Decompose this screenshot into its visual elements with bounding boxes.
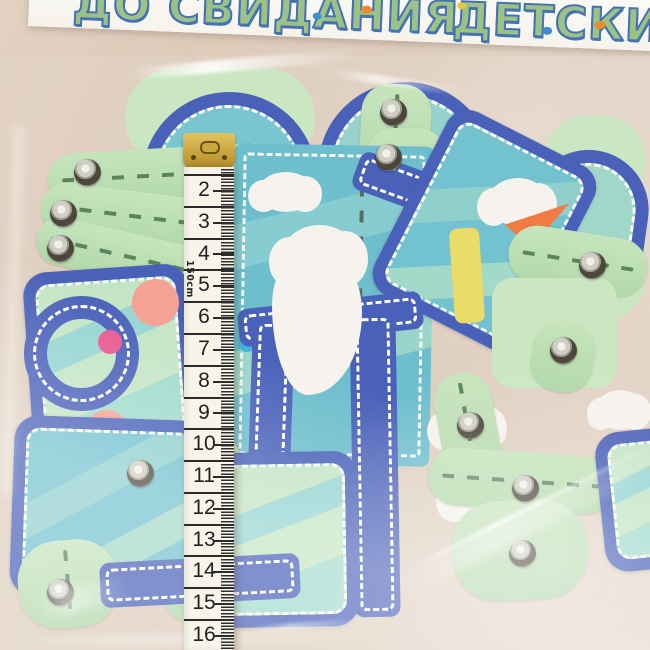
pieces-stack bbox=[0, 0, 650, 650]
cloud-shape bbox=[258, 172, 314, 212]
tape-cm-line bbox=[184, 460, 234, 462]
tape-cm-line bbox=[184, 397, 234, 399]
tape-half-cm-tick bbox=[213, 349, 234, 351]
metal-eyelet bbox=[457, 412, 484, 439]
tape-cm-line bbox=[184, 174, 234, 176]
coral-circle bbox=[132, 279, 179, 326]
tape-half-cm-tick bbox=[213, 540, 234, 542]
metal-eyelet bbox=[380, 99, 407, 126]
tape-cm-line bbox=[184, 492, 234, 494]
metal-eyelet bbox=[74, 159, 101, 186]
tape-cm-line bbox=[184, 333, 234, 335]
blue-wheel-ring bbox=[24, 296, 139, 411]
tape-cm-line bbox=[184, 587, 234, 589]
frame-inner bbox=[606, 439, 650, 560]
pillar-dashes bbox=[355, 318, 394, 612]
tape-half-cm-tick bbox=[213, 253, 234, 255]
tape-half-cm-tick bbox=[213, 412, 234, 414]
ring-dashes bbox=[33, 305, 130, 402]
metal-eyelet bbox=[50, 200, 77, 227]
tape-cm-line bbox=[184, 555, 234, 557]
tape-half-cm-tick bbox=[213, 285, 234, 287]
magenta-circle bbox=[98, 330, 122, 354]
tape-mm-ticks bbox=[221, 169, 234, 650]
tape-cm-line bbox=[184, 301, 234, 303]
clip-rivet bbox=[191, 155, 196, 160]
metal-eyelet bbox=[127, 460, 154, 487]
metal-eyelet bbox=[375, 144, 402, 171]
tape-half-cm-tick bbox=[213, 381, 234, 383]
tape-cm-line bbox=[184, 619, 234, 621]
blue-frame bbox=[593, 426, 650, 574]
tape-cm-line bbox=[184, 524, 234, 526]
tape-cm-line bbox=[184, 238, 234, 240]
tape-half-cm-tick bbox=[213, 444, 234, 446]
tape-half-cm-tick bbox=[213, 222, 234, 224]
tape-cm-line bbox=[184, 428, 234, 430]
tape-metal-clip bbox=[183, 133, 235, 169]
measuring-tape: 150cm 2345678910111213141516 bbox=[183, 133, 235, 650]
tape-half-cm-tick bbox=[213, 317, 234, 319]
metal-eyelet bbox=[579, 252, 606, 279]
tape-half-cm-tick bbox=[213, 508, 234, 510]
tape-cm-line bbox=[184, 365, 234, 367]
metal-eyelet bbox=[47, 579, 74, 606]
tape-half-cm-tick bbox=[213, 190, 234, 192]
cloud-shape bbox=[596, 390, 644, 430]
metal-eyelet bbox=[509, 540, 536, 567]
tape-cm-line bbox=[184, 269, 234, 271]
metal-eyelet bbox=[550, 337, 577, 364]
tape-cm-line bbox=[184, 206, 234, 208]
tape-half-cm-tick bbox=[213, 476, 234, 478]
clip-rivet bbox=[222, 155, 227, 160]
tape-half-cm-tick bbox=[213, 571, 234, 573]
metal-eyelet bbox=[512, 475, 539, 502]
tape-half-cm-tick bbox=[213, 635, 234, 637]
metal-eyelet bbox=[47, 235, 74, 262]
tape-half-cm-tick bbox=[213, 603, 234, 605]
tape-body: 150cm 2345678910111213141516 bbox=[184, 167, 234, 650]
